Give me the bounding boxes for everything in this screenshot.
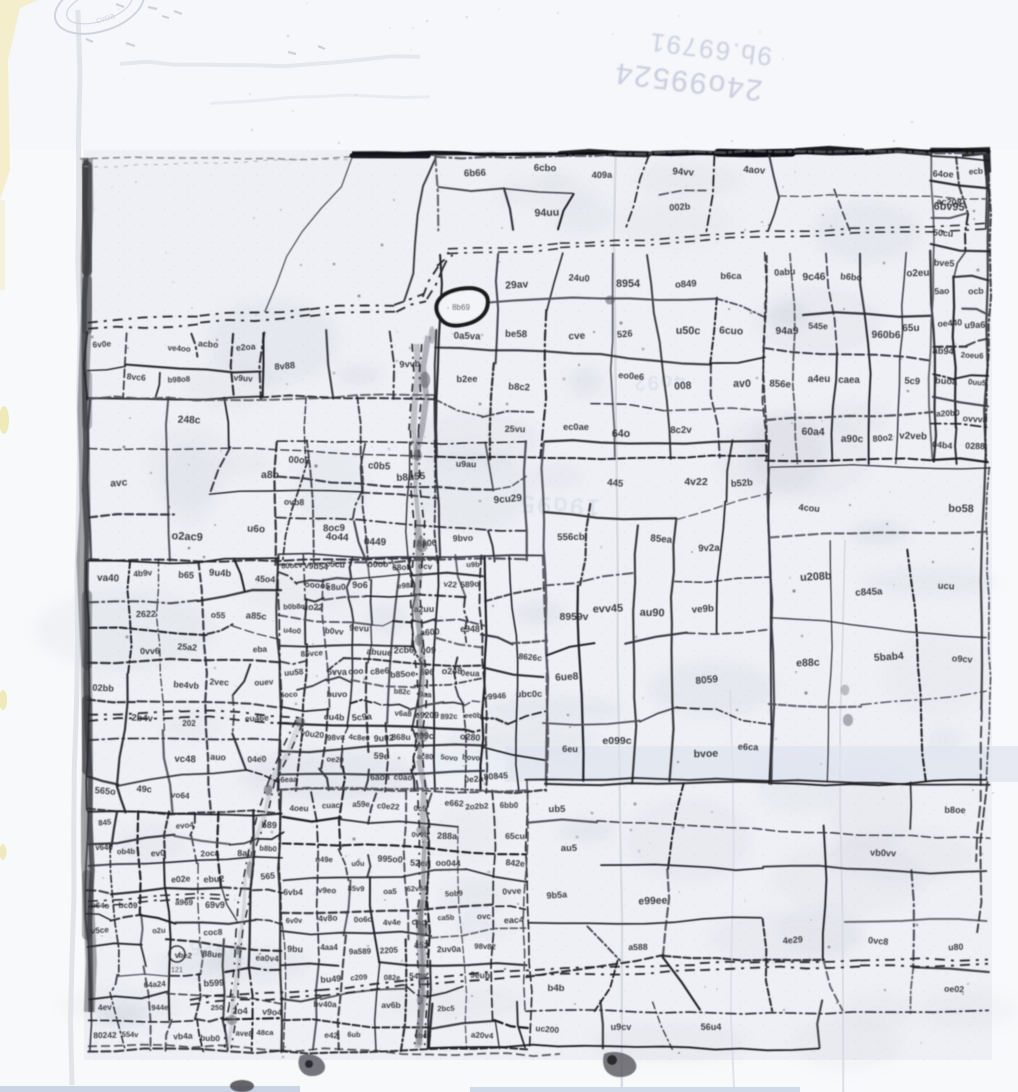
svg-text:v: v bbox=[175, 951, 180, 960]
svg-text:u9b: u9b bbox=[466, 560, 480, 569]
svg-text:evo4: evo4 bbox=[175, 820, 194, 831]
svg-text:auo: auo bbox=[210, 752, 227, 763]
svg-text:vc48: vc48 bbox=[174, 754, 196, 766]
svg-text:ca5b: ca5b bbox=[437, 913, 455, 923]
svg-text:a59e: a59e bbox=[352, 800, 370, 809]
svg-text:ub5: ub5 bbox=[548, 804, 566, 815]
svg-text:evv45: evv45 bbox=[593, 602, 624, 615]
svg-text:b8c2: b8c2 bbox=[508, 381, 530, 393]
svg-text:c845a: c845a bbox=[855, 586, 883, 598]
svg-text:9a589: 9a589 bbox=[349, 947, 372, 956]
svg-text:ooo: ooo bbox=[348, 666, 364, 677]
svg-text:b0b8c: b0b8c bbox=[283, 602, 305, 612]
svg-text:b6ca: b6ca bbox=[720, 271, 742, 281]
svg-text:cuac: cuac bbox=[322, 801, 341, 811]
svg-text:0eua: 0eua bbox=[460, 668, 480, 679]
svg-text:a8b: a8b bbox=[261, 470, 279, 481]
svg-text:o2u: o2u bbox=[152, 926, 166, 935]
svg-text:98va: 98va bbox=[327, 733, 346, 743]
svg-text:abuue: abuue bbox=[366, 646, 392, 658]
svg-text:v0u20: v0u20 bbox=[300, 728, 325, 740]
svg-text:vb4a: vb4a bbox=[173, 1030, 193, 1041]
svg-text:2622: 2622 bbox=[136, 609, 156, 619]
svg-text:94a9: 94a9 bbox=[776, 326, 799, 337]
svg-text:uu58: uu58 bbox=[284, 667, 304, 678]
svg-text:4aa4: 4aa4 bbox=[320, 943, 338, 952]
svg-text:acbo: acbo bbox=[198, 338, 219, 349]
svg-text:556cb: 556cb bbox=[557, 532, 585, 543]
svg-text:ave8: ave8 bbox=[235, 1029, 253, 1039]
svg-text:4oeu: 4oeu bbox=[289, 804, 308, 813]
svg-text:202: 202 bbox=[182, 719, 196, 728]
svg-text:64a24: 64a24 bbox=[144, 979, 167, 990]
svg-text:0288: 0288 bbox=[965, 441, 985, 452]
svg-text:6bb0: 6bb0 bbox=[500, 801, 519, 810]
svg-text:9b5a: 9b5a bbox=[546, 889, 568, 900]
svg-text:ovc: ovc bbox=[477, 912, 492, 921]
svg-text:65cu: 65cu bbox=[505, 831, 525, 841]
svg-text:0vc8: 0vc8 bbox=[868, 935, 889, 947]
svg-text:445: 445 bbox=[607, 477, 625, 489]
svg-text:4e29: 4e29 bbox=[782, 934, 803, 945]
svg-text:b8b0: b8b0 bbox=[259, 844, 277, 854]
svg-text:ouev: ouev bbox=[254, 677, 274, 687]
svg-text:59e: 59e bbox=[373, 750, 389, 761]
svg-text:5c9a: 5c9a bbox=[351, 711, 373, 722]
svg-text:6v0e: 6v0e bbox=[92, 338, 111, 349]
svg-text:u9a6: u9a6 bbox=[964, 320, 985, 331]
svg-text:e99ee: e99ee bbox=[638, 895, 667, 907]
svg-text:4v8o: 4v8o bbox=[318, 913, 338, 924]
svg-text:o2eu: o2eu bbox=[906, 268, 929, 280]
svg-text:80o2: 80o2 bbox=[872, 432, 893, 444]
svg-text:a20b0: a20b0 bbox=[936, 407, 960, 418]
svg-text:bvoe: bvoe bbox=[693, 748, 718, 761]
svg-text:o9cv: o9cv bbox=[952, 653, 974, 664]
svg-text:au90: au90 bbox=[639, 607, 664, 620]
svg-text:caea: caea bbox=[838, 375, 860, 386]
svg-text:85vce: 85vce bbox=[300, 648, 323, 659]
svg-text:ve4oo: ve4oo bbox=[167, 343, 191, 354]
svg-text:6eaa: 6eaa bbox=[280, 775, 298, 785]
svg-text:69v9: 69v9 bbox=[205, 900, 225, 910]
svg-text:b82c: b82c bbox=[393, 687, 410, 697]
svg-text:ebu2: ebu2 bbox=[203, 873, 224, 884]
svg-text:o280: o280 bbox=[460, 731, 481, 743]
svg-text:u50c: u50c bbox=[676, 325, 701, 337]
svg-text:4v4e: 4v4e bbox=[383, 918, 402, 928]
svg-text:vb0vv: vb0vv bbox=[870, 848, 897, 859]
svg-text:52ea: 52ea bbox=[410, 858, 431, 869]
svg-text:bve5: bve5 bbox=[934, 257, 955, 268]
svg-text:2bc5: 2bc5 bbox=[437, 1004, 455, 1013]
svg-text:98v82: 98v82 bbox=[474, 942, 496, 952]
svg-text:526: 526 bbox=[617, 328, 633, 339]
svg-text:04e0: 04e0 bbox=[247, 754, 267, 765]
svg-text:4o44: 4o44 bbox=[325, 531, 349, 544]
svg-text:6v0v: 6v0v bbox=[286, 916, 303, 925]
svg-text:ocb: ocb bbox=[968, 286, 984, 297]
svg-text:002b: 002b bbox=[669, 201, 691, 212]
svg-text:56u4: 56u4 bbox=[701, 1022, 723, 1032]
svg-text:v9o4: v9o4 bbox=[262, 1006, 282, 1017]
svg-text:v22: v22 bbox=[443, 579, 458, 589]
svg-text:eba: eba bbox=[253, 644, 268, 655]
svg-text:4v22: 4v22 bbox=[684, 476, 708, 488]
svg-text:v6a8: v6a8 bbox=[394, 709, 412, 719]
svg-text:e02e: e02e bbox=[171, 873, 191, 884]
svg-text:ec0ae: ec0ae bbox=[563, 422, 589, 432]
svg-text:bv40a: bv40a bbox=[313, 1000, 337, 1009]
svg-text:e948: e948 bbox=[460, 624, 480, 634]
svg-text:995o0: 995o0 bbox=[377, 853, 403, 864]
svg-text:49c: 49c bbox=[136, 783, 152, 794]
svg-text:u80: u80 bbox=[948, 942, 964, 953]
svg-text:6cuo: 6cuo bbox=[719, 325, 744, 337]
svg-text:uc200: uc200 bbox=[535, 1023, 560, 1035]
svg-text:u9au: u9au bbox=[456, 459, 477, 470]
svg-text:8954: 8954 bbox=[616, 278, 640, 290]
svg-text:uo22: uo22 bbox=[303, 602, 324, 612]
svg-text:68ob: 68ob bbox=[392, 562, 412, 573]
svg-text:c209: c209 bbox=[350, 972, 367, 982]
svg-text:589o: 589o bbox=[460, 578, 480, 589]
svg-text:c5cu: c5cu bbox=[325, 558, 345, 569]
svg-text:565: 565 bbox=[260, 870, 275, 881]
svg-text:2cb6: 2cb6 bbox=[394, 645, 415, 656]
svg-text:b599: b599 bbox=[203, 977, 224, 988]
svg-text:o55: o55 bbox=[211, 610, 226, 621]
svg-text:4cou: 4cou bbox=[798, 502, 820, 514]
svg-text:buoa: buoa bbox=[935, 375, 959, 386]
svg-text:b65: b65 bbox=[178, 570, 194, 581]
svg-text:v5ce: v5ce bbox=[90, 925, 109, 936]
svg-text:4c8e0: 4c8e0 bbox=[348, 732, 370, 743]
svg-text:25a2: 25a2 bbox=[177, 641, 197, 652]
svg-text:60a4: 60a4 bbox=[801, 427, 825, 438]
svg-text:u208b: u208b bbox=[800, 570, 832, 584]
svg-text:9bvo: 9bvo bbox=[453, 533, 474, 544]
svg-text:bu49: bu49 bbox=[320, 973, 341, 984]
svg-text:85v9: 85v9 bbox=[348, 884, 365, 894]
svg-text:e662: e662 bbox=[444, 798, 464, 809]
svg-text:c0ao: c0ao bbox=[394, 773, 413, 783]
svg-text:0abu: 0abu bbox=[774, 266, 796, 277]
svg-text:b4b: b4b bbox=[547, 983, 564, 994]
svg-text:bovo: bovo bbox=[462, 752, 481, 762]
svg-text:5c9: 5c9 bbox=[904, 374, 920, 386]
svg-text:65u: 65u bbox=[902, 323, 919, 334]
svg-text:0e2a: 0e2a bbox=[464, 773, 484, 784]
svg-text:av6b: av6b bbox=[381, 1000, 401, 1010]
svg-text:5oco: 5oco bbox=[280, 690, 298, 700]
svg-text:o849: o849 bbox=[675, 278, 697, 290]
svg-text:0a5va: 0a5va bbox=[454, 331, 482, 343]
svg-text:80242: 80242 bbox=[93, 1030, 117, 1040]
svg-text:6ue8: 6ue8 bbox=[555, 671, 579, 684]
svg-text:buvo: buvo bbox=[327, 689, 348, 699]
svg-text:ab94: ab94 bbox=[932, 345, 955, 356]
svg-text:oo044: oo044 bbox=[436, 858, 461, 869]
svg-text:c0e22: c0e22 bbox=[377, 801, 401, 812]
svg-text:cve: cve bbox=[568, 331, 586, 343]
svg-text:oa5: oa5 bbox=[383, 887, 397, 896]
svg-text:0o6c: 0o6c bbox=[354, 915, 373, 925]
svg-text:a588: a588 bbox=[628, 942, 648, 952]
svg-text:e6ca: e6ca bbox=[738, 742, 760, 753]
svg-text:5bab4: 5bab4 bbox=[874, 651, 905, 664]
svg-text:6b66: 6b66 bbox=[464, 168, 487, 180]
svg-text:ob4b: ob4b bbox=[117, 847, 136, 856]
svg-text:2oca: 2oca bbox=[200, 848, 220, 858]
svg-text:4aov: 4aov bbox=[743, 164, 766, 177]
svg-text:ac208: ac208 bbox=[936, 197, 962, 208]
svg-text:b85oe: b85oe bbox=[390, 668, 416, 680]
svg-text:v9eo: v9eo bbox=[318, 886, 337, 896]
svg-text:e099c: e099c bbox=[602, 735, 631, 747]
svg-text:80ocv: 80ocv bbox=[281, 560, 304, 570]
svg-text:ovvv8: ovvv8 bbox=[962, 413, 988, 425]
svg-text:008: 008 bbox=[674, 381, 692, 393]
svg-text:ev0: ev0 bbox=[151, 848, 166, 859]
svg-text:0vve: 0vve bbox=[502, 886, 522, 897]
svg-text:6vva: 6vva bbox=[327, 667, 347, 677]
svg-text:02bb: 02bb bbox=[92, 682, 114, 693]
svg-text:b98o8: b98o8 bbox=[167, 374, 191, 384]
svg-text:coc8: coc8 bbox=[203, 927, 223, 938]
svg-text:ee0b: ee0b bbox=[465, 711, 482, 720]
svg-text:6cbo: 6cbo bbox=[534, 163, 557, 174]
svg-text:oe02: oe02 bbox=[944, 984, 964, 995]
svg-text:avc: avc bbox=[110, 477, 128, 489]
svg-text:ucu: ucu bbox=[938, 580, 955, 592]
svg-text:bo58: bo58 bbox=[948, 503, 974, 515]
svg-text:c8u0: c8u0 bbox=[326, 582, 346, 593]
svg-text:c8e6: c8e6 bbox=[370, 665, 390, 676]
svg-text:856e: 856e bbox=[769, 378, 792, 390]
svg-text:94vv: 94vv bbox=[672, 166, 695, 179]
svg-text:5ob9: 5ob9 bbox=[445, 889, 463, 899]
svg-text:2oeu6: 2oeu6 bbox=[961, 350, 985, 360]
svg-text:48ca: 48ca bbox=[257, 1028, 275, 1037]
svg-text:845: 845 bbox=[98, 817, 112, 827]
svg-text:5ovo: 5ovo bbox=[440, 752, 458, 763]
svg-text:o0ob: o0ob bbox=[367, 559, 388, 569]
svg-text:6ub: 6ub bbox=[347, 1030, 361, 1039]
svg-text:9evu: 9evu bbox=[349, 622, 369, 633]
svg-text:2vec: 2vec bbox=[209, 677, 229, 688]
svg-text:64oe: 64oe bbox=[932, 168, 953, 179]
svg-text:250: 250 bbox=[211, 1003, 224, 1012]
svg-text:o248: o248 bbox=[442, 666, 463, 676]
svg-text:8vc6: 8vc6 bbox=[126, 371, 146, 383]
svg-text:944e: 944e bbox=[151, 1003, 168, 1013]
svg-text:892c: 892c bbox=[440, 712, 458, 721]
svg-text:0449: 0449 bbox=[364, 537, 387, 548]
svg-text:bco9: bco9 bbox=[119, 901, 139, 910]
svg-text:ecb: ecb bbox=[969, 167, 984, 177]
svg-text:o2ac9: o2ac9 bbox=[171, 530, 203, 544]
svg-text:6ao8: 6ao8 bbox=[370, 772, 390, 782]
svg-text:e88c: e88c bbox=[796, 657, 820, 670]
svg-text:e984: e984 bbox=[397, 580, 415, 590]
svg-text:b8oe: b8oe bbox=[944, 805, 965, 815]
svg-text:v2veb: v2veb bbox=[899, 431, 927, 443]
svg-text:a85c: a85c bbox=[246, 610, 267, 621]
svg-text:9c46: 9c46 bbox=[802, 272, 826, 283]
svg-text:v640: v640 bbox=[95, 843, 113, 852]
svg-text:u6o: u6o bbox=[247, 524, 266, 536]
svg-text:0vv6: 0vv6 bbox=[140, 646, 160, 656]
svg-text:8059: 8059 bbox=[695, 674, 719, 687]
svg-text:ubc0c: ubc0c bbox=[516, 689, 542, 699]
svg-text:e2oa: e2oa bbox=[236, 341, 257, 353]
svg-text:v9uv: v9uv bbox=[233, 372, 253, 383]
svg-text:au5: au5 bbox=[561, 842, 577, 853]
svg-text:565o: 565o bbox=[94, 785, 116, 797]
svg-text:64o: 64o bbox=[612, 428, 631, 440]
svg-text:288a: 288a bbox=[437, 831, 458, 842]
svg-text:409a: 409a bbox=[592, 170, 614, 180]
svg-text:868u: 868u bbox=[391, 732, 410, 742]
svg-text:80845: 80845 bbox=[483, 770, 508, 782]
svg-text:b6bo: b6bo bbox=[840, 271, 863, 283]
svg-text:2o2b2: 2o2b2 bbox=[465, 801, 489, 811]
svg-text:eac4: eac4 bbox=[504, 915, 524, 926]
svg-text:ovb8: ovb8 bbox=[284, 497, 305, 508]
svg-text:4ev: 4ev bbox=[98, 1002, 113, 1013]
svg-text:e42: e42 bbox=[324, 1031, 339, 1041]
svg-text:45o4: 45o4 bbox=[255, 573, 276, 584]
svg-text:545e: 545e bbox=[808, 321, 828, 332]
svg-text:be58: be58 bbox=[505, 329, 528, 340]
svg-text:b52b: b52b bbox=[730, 476, 753, 489]
svg-text:a20v4: a20v4 bbox=[471, 1030, 494, 1040]
svg-text:50cu: 50cu bbox=[933, 227, 954, 238]
svg-text:4b9v: 4b9v bbox=[133, 567, 153, 579]
svg-text:b2ee: b2ee bbox=[456, 374, 477, 384]
svg-text:b0vv: b0vv bbox=[324, 625, 344, 637]
svg-text:bub0: bub0 bbox=[200, 1033, 221, 1044]
svg-text:oe440: oe440 bbox=[937, 317, 962, 329]
svg-text:9u4b: 9u4b bbox=[209, 567, 232, 579]
svg-text:5ao: 5ao bbox=[934, 286, 949, 297]
svg-text:u49e: u49e bbox=[315, 855, 333, 864]
svg-text:842e: 842e bbox=[505, 857, 525, 869]
svg-text:oe20: oe20 bbox=[326, 754, 344, 764]
svg-text:8959v: 8959v bbox=[560, 612, 589, 623]
svg-text:u4o0: u4o0 bbox=[283, 625, 301, 635]
svg-text:24u0: 24u0 bbox=[568, 272, 589, 283]
svg-text:9v2a: 9v2a bbox=[698, 543, 720, 555]
svg-text:6eu: 6eu bbox=[562, 744, 578, 754]
svg-text:a4eu: a4eu bbox=[808, 374, 831, 385]
svg-text:u9cv: u9cv bbox=[611, 1022, 633, 1032]
svg-text:25vu: 25vu bbox=[505, 424, 526, 434]
svg-text:a90c: a90c bbox=[841, 434, 864, 445]
svg-text:c0b5: c0b5 bbox=[368, 460, 391, 472]
svg-text:cu4b: cu4b bbox=[324, 711, 346, 722]
svg-text:88ue: 88ue bbox=[202, 948, 222, 959]
svg-text:554v: 554v bbox=[122, 1030, 140, 1039]
svg-text:04b4: 04b4 bbox=[932, 439, 953, 451]
svg-text:2uv0a: 2uv0a bbox=[437, 944, 462, 954]
svg-text:9bu: 9bu bbox=[287, 944, 303, 955]
svg-text:vo64: vo64 bbox=[171, 790, 191, 800]
svg-text:9o6: 9o6 bbox=[352, 580, 368, 590]
svg-text:6vb4: 6vb4 bbox=[283, 887, 303, 897]
svg-text:121: 121 bbox=[171, 967, 183, 974]
svg-text:ve9b: ve9b bbox=[691, 603, 714, 616]
svg-text:00o2: 00o2 bbox=[288, 454, 310, 465]
svg-text:8b69: 8b69 bbox=[452, 303, 470, 312]
svg-text:8626c: 8626c bbox=[518, 651, 542, 663]
svg-text:be4vb: be4vb bbox=[173, 679, 200, 691]
svg-text:av0: av0 bbox=[733, 378, 751, 390]
svg-text:8v88: 8v88 bbox=[274, 360, 295, 372]
svg-text:2o4: 2o4 bbox=[232, 1006, 247, 1016]
svg-text:960b6: 960b6 bbox=[872, 330, 901, 342]
svg-text:2205: 2205 bbox=[380, 946, 399, 956]
svg-text:va40: va40 bbox=[97, 573, 120, 585]
svg-text:248c: 248c bbox=[178, 415, 201, 427]
svg-text:94uu: 94uu bbox=[534, 207, 559, 220]
svg-text:29av: 29av bbox=[505, 279, 529, 292]
svg-text:8c2v: 8c2v bbox=[670, 425, 692, 436]
svg-text:v9946: v9946 bbox=[483, 691, 507, 702]
svg-text:85ea: 85ea bbox=[650, 533, 673, 546]
